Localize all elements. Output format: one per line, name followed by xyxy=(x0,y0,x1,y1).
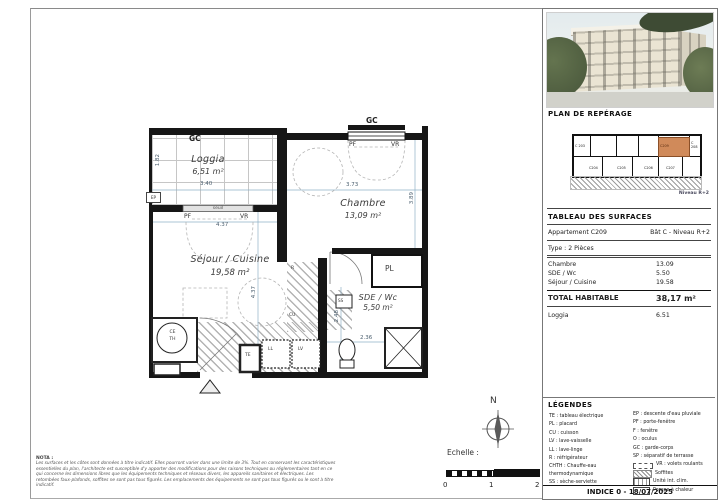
loggia-row-value: 6.51 xyxy=(656,312,670,319)
seuil-label: seuil xyxy=(200,207,236,212)
loggia-row: Loggia 6.51 xyxy=(548,312,710,319)
row-value: 13.09 xyxy=(656,261,674,268)
legend-item: TE : tableau électrique xyxy=(549,413,629,421)
loggia-name: Loggia xyxy=(178,155,238,165)
lv-label: LV xyxy=(298,348,303,353)
cuisson-label: CU xyxy=(289,314,295,319)
refrigerateur-label: R xyxy=(291,267,294,272)
building-photo xyxy=(546,12,714,108)
legend-item: Soffites xyxy=(655,470,673,478)
chambre-window xyxy=(348,132,405,140)
scale-tick-0: 0 xyxy=(443,481,447,489)
scale-bar xyxy=(446,469,540,477)
unit-label-c203: C 203 xyxy=(575,145,587,149)
sde-height-dim: 2.48 xyxy=(335,310,341,322)
pl-label: PL xyxy=(385,265,394,273)
unit-label-c207: C207 xyxy=(666,166,675,170)
surface-row: Chambre 13.09 xyxy=(548,261,710,268)
loggia-vr-label: VR xyxy=(240,214,248,220)
legend-item: O : oculus xyxy=(633,436,715,444)
legend-right-column: EP : descente d'eau pluviale PF : porte-… xyxy=(633,411,715,495)
mini-plan-hatch-strip xyxy=(570,176,702,190)
legend-item: GC : garde-corps xyxy=(633,445,715,453)
reperage-title: PLAN DE REPÉRAGE xyxy=(548,110,632,118)
loggia-area: 6,51 m² xyxy=(178,168,238,176)
legend-item: SP : séparatif de terrasse xyxy=(633,453,715,461)
legend-item: R : réfrigérateur xyxy=(549,455,629,463)
niveau-label: Niveau R+2 xyxy=(679,191,709,196)
soffites-symbol xyxy=(633,470,652,478)
legend-item: LV : lave-vaisselle xyxy=(549,438,629,446)
north-label: N xyxy=(490,396,497,406)
floor-plan: GC Loggia 6,51 m² 3.40 1.82 EP seuil PF … xyxy=(140,110,440,405)
loggia-width-dim: 3.40 xyxy=(200,182,212,188)
row-label: Séjour / Cuisine xyxy=(548,279,596,286)
reperage-mini-plan: C209 C 203 C204 C205 C206 C207 C 208 xyxy=(564,132,704,196)
row-value: 5.50 xyxy=(656,270,670,277)
unit-label-c205: C205 xyxy=(617,166,626,170)
sejour-name: Séjour / Cuisine xyxy=(170,255,290,265)
loggia-height-dim: 1.82 xyxy=(156,154,162,166)
sejour-door-dim: 4.37 xyxy=(216,223,228,229)
ep-box: EP xyxy=(146,192,161,203)
ss-label: SS xyxy=(338,299,343,303)
legend-item: VR : volets roulants xyxy=(656,461,703,469)
legend-item: PF : porte-fenêtre xyxy=(633,419,715,427)
legend-item: LL : lave-linge xyxy=(549,447,629,455)
chambre-name: Chambre xyxy=(332,199,394,209)
row-label: Chambre xyxy=(548,261,576,268)
table-title: TABLEAU DES SURFACES xyxy=(548,213,652,221)
loggia-pf-label: PF xyxy=(184,214,191,220)
ll-label: LL xyxy=(268,348,273,353)
chambre-area: 13,09 m² xyxy=(332,212,394,220)
scale-label: Echelle : xyxy=(447,448,479,457)
legend-item: CHTH : Chauffe-eau thermodynamique xyxy=(549,463,629,478)
legend-left-column: TE : tableau électrique PL : placard CU … xyxy=(549,413,629,487)
placard-box xyxy=(372,255,422,287)
indice-footer: INDICE 0 - 18/07/2025 xyxy=(543,485,717,499)
chambre-gc-label: GC xyxy=(366,117,378,125)
ce-label: CE xyxy=(166,331,179,336)
total-value: 38,17 m² xyxy=(656,294,696,303)
chambre-height-dim: 3.89 xyxy=(410,192,416,204)
sde-area: 5,50 m² xyxy=(346,304,410,312)
scale-tick-2: 2 xyxy=(535,481,539,489)
legend-item: F : fenêtre xyxy=(633,428,715,436)
loggia-gc-label: GC xyxy=(189,135,201,143)
nota-block: NOTA : Les surfaces et les côtes sont do… xyxy=(36,456,336,488)
unit-label-c206: C206 xyxy=(644,166,653,170)
north-compass-icon xyxy=(479,406,517,452)
apartment-row: Appartement C209 Bât C - Niveau R+2 xyxy=(548,229,710,236)
type-row: Type : 2 Pièces xyxy=(548,245,710,252)
total-row: TOTAL HABITABLE 38,17 m² xyxy=(548,294,710,302)
total-label: TOTAL HABITABLE xyxy=(548,294,619,302)
legend-item: PL : placard xyxy=(549,421,629,429)
sejour-area: 19,58 m² xyxy=(170,269,290,278)
legend-title: LÉGENDES xyxy=(548,401,592,409)
unit-label-c209: C209 xyxy=(660,144,669,148)
row-value: 19.58 xyxy=(656,279,674,286)
scale-bar-segment-1 xyxy=(446,470,494,477)
chambre-vr-label: VR xyxy=(391,142,399,148)
apartment-id: Appartement C209 xyxy=(548,229,607,236)
building-level: Bât C - Niveau R+2 xyxy=(650,229,710,236)
sidebar-panel: PLAN DE REPÉRAGE C209 C 203 C204 C205 C2… xyxy=(542,8,718,500)
legend-item: CU : cuisson xyxy=(549,430,629,438)
chambre-width-dim: 3.73 xyxy=(346,183,358,189)
scale-tick-1: 1 xyxy=(489,481,493,489)
legend-symbol-row: Soffites xyxy=(633,470,715,478)
surface-row: SDE / Wc 5.50 xyxy=(548,270,710,277)
scale-bar-segment-2 xyxy=(494,469,540,477)
te-label: TE xyxy=(245,354,251,359)
sde-name: SDE / Wc xyxy=(346,294,410,302)
row-label: SDE / Wc xyxy=(548,270,576,277)
sejour-height-dim: 4.37 xyxy=(252,286,258,298)
nota-text: Les surfaces et les côtes sont données à… xyxy=(36,461,335,488)
surface-row: Séjour / Cuisine 19.58 xyxy=(548,279,710,286)
legend-item: EP : descente d'eau pluviale xyxy=(633,411,715,419)
unit-label-c204: C204 xyxy=(589,166,598,170)
legend-symbol-row: VR : volets roulants xyxy=(633,461,715,469)
photo-ground xyxy=(547,92,713,107)
photo-building-front xyxy=(573,26,683,92)
unit-label-c208: C 208 xyxy=(691,142,699,150)
volets-roulants-symbol xyxy=(633,463,653,469)
th-label: TH xyxy=(166,338,179,343)
chambre-pf-label: PF xyxy=(349,142,356,148)
loggia-row-label: Loggia xyxy=(548,312,569,319)
sde-width-dim: 2.36 xyxy=(360,336,372,342)
